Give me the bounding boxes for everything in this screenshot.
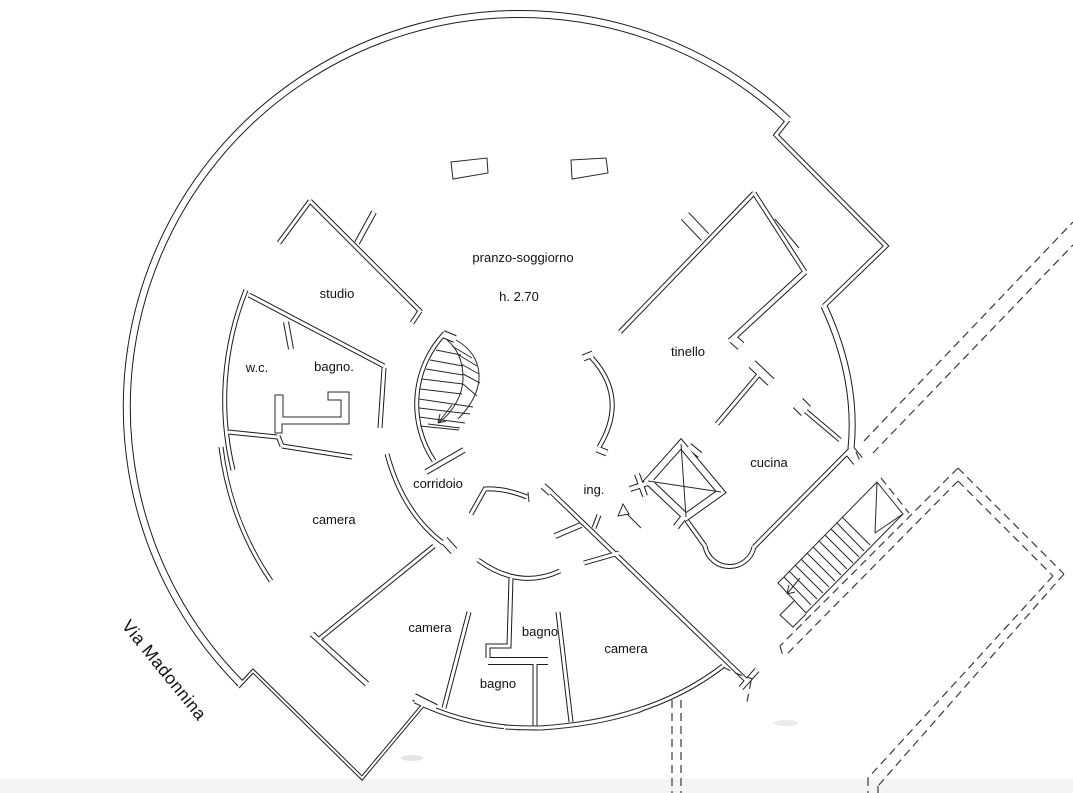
svg-text:pranzo-soggiorno: pranzo-soggiorno (472, 250, 573, 265)
svg-text:w.c.: w.c. (245, 360, 268, 375)
svg-text:cucina: cucina (750, 455, 788, 470)
svg-text:camera: camera (604, 641, 648, 656)
svg-text:bagno: bagno (480, 676, 516, 691)
svg-text:h. 2.70: h. 2.70 (499, 289, 539, 304)
svg-text:ing.: ing. (584, 482, 605, 497)
svg-text:camera: camera (408, 620, 452, 635)
svg-text:studio: studio (320, 286, 355, 301)
svg-text:tinello: tinello (671, 344, 705, 359)
svg-text:bagno.: bagno. (314, 359, 354, 374)
svg-text:corridoio: corridoio (413, 476, 463, 491)
svg-text:bagno: bagno (522, 624, 558, 639)
svg-text:camera: camera (312, 512, 356, 527)
